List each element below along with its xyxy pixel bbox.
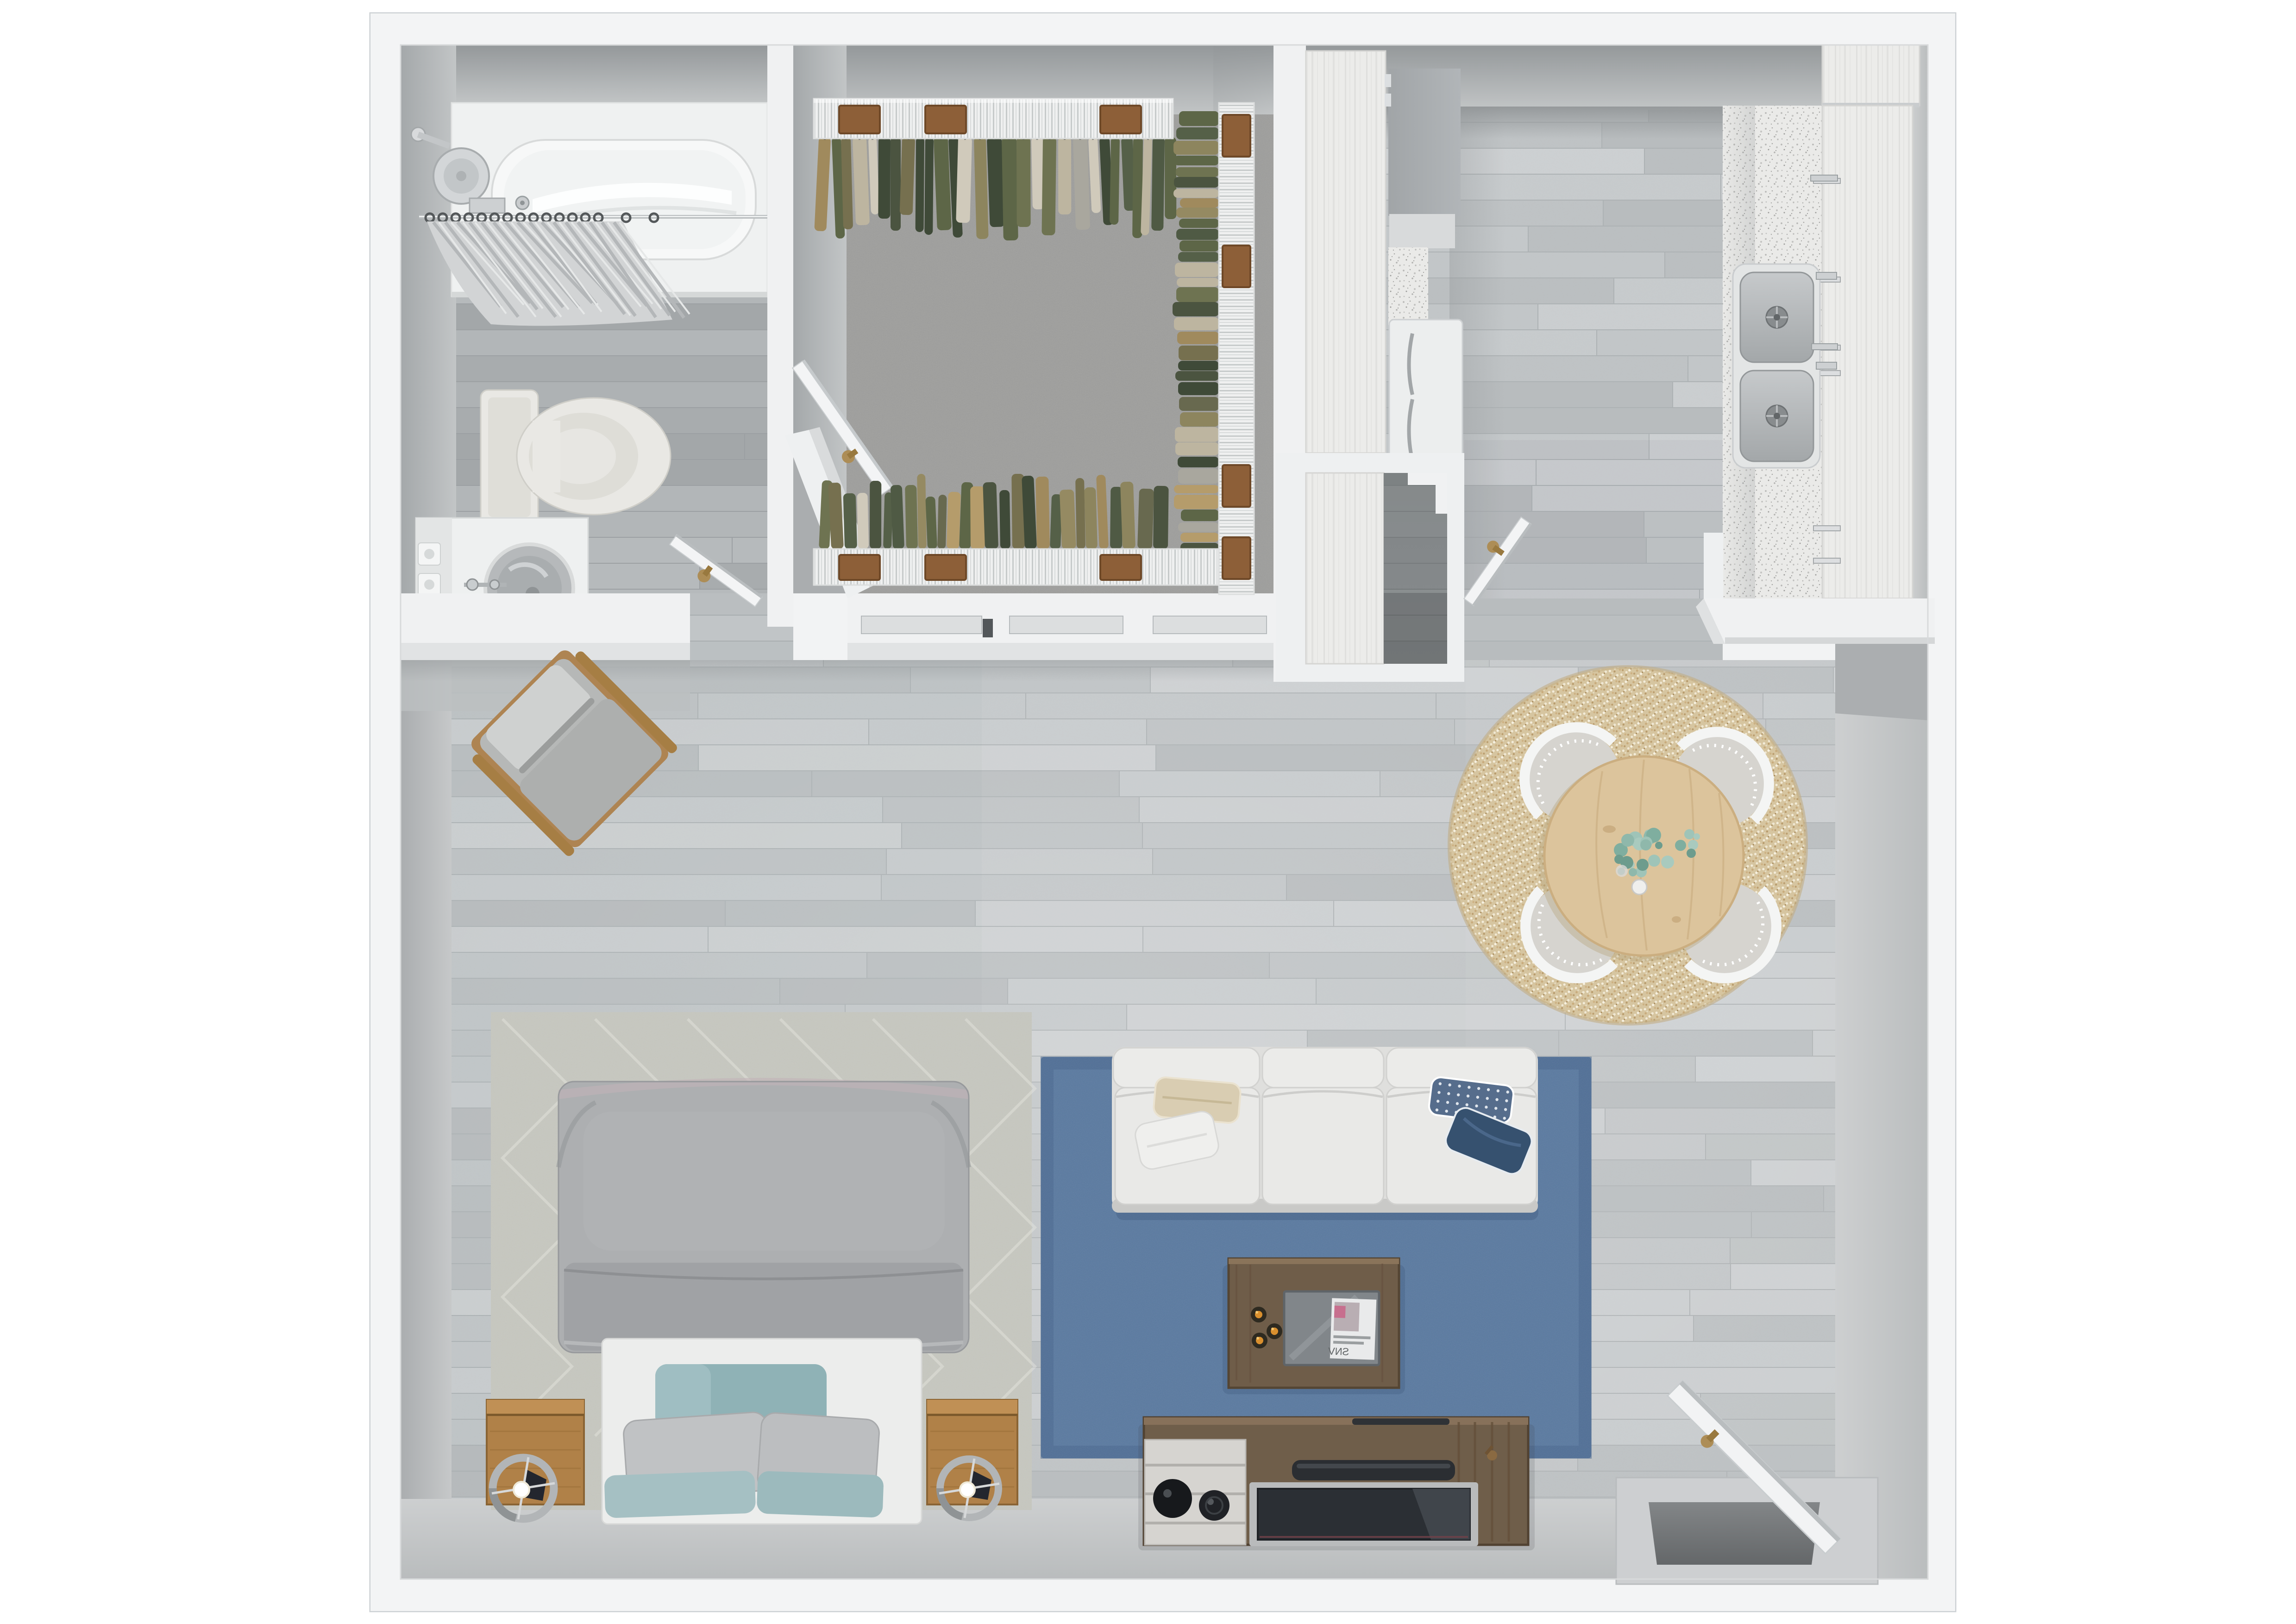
svg-text:SNV: SNV [1328,1345,1349,1358]
